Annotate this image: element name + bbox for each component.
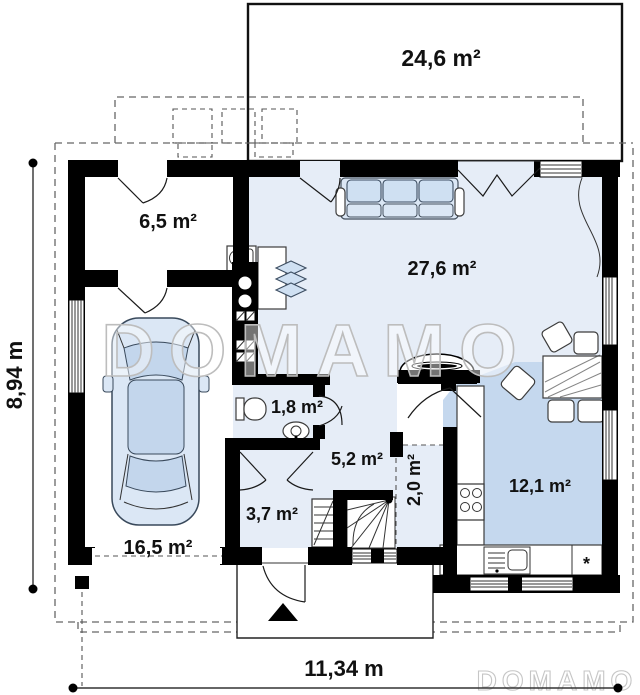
- hall-label: 3,7 m²: [246, 504, 298, 524]
- appliance-star: *: [583, 554, 590, 574]
- wardrobe: [312, 499, 335, 547]
- sofa: [336, 178, 464, 219]
- roof-window-outline: [178, 143, 212, 157]
- floor-plan-page: *: [0, 0, 640, 695]
- watermark-center: DOMAMO: [101, 309, 530, 392]
- chair: [574, 332, 598, 354]
- floor-plan-drawing: *: [0, 0, 640, 695]
- vestibule-entry-door: [118, 178, 167, 203]
- wc-label: 1,8 m²: [271, 397, 323, 417]
- kitchen-sink: [484, 547, 530, 574]
- toilet: [236, 398, 266, 420]
- roof-window-outline: [173, 109, 212, 143]
- dimension-left: 8,94 m: [2, 159, 38, 594]
- kitchen-right-window: [603, 410, 617, 480]
- chair: [578, 400, 604, 422]
- corridor-label: 5,2 m²: [331, 449, 383, 469]
- kitchen-south-window: [470, 577, 573, 591]
- garage-label: 16,5 m²: [124, 537, 193, 559]
- porch-column: [75, 576, 89, 589]
- watermark-corner: DOMAMO: [477, 665, 638, 695]
- door-opening: [118, 270, 167, 287]
- terrace-slab: [248, 4, 622, 161]
- stairs: [347, 497, 395, 549]
- terrace-door-window: [534, 160, 582, 177]
- radiator: [276, 261, 306, 297]
- garage-left-window: [69, 300, 84, 393]
- stairs-window: [352, 549, 397, 563]
- living-right-window: [603, 277, 617, 345]
- vestibule-label: 6,5 m²: [139, 211, 197, 233]
- terrace-label: 24,6 m²: [401, 45, 481, 71]
- living-label: 27,6 m²: [408, 258, 477, 280]
- wc-sink: [283, 422, 309, 440]
- height-dimension-label: 8,94 m: [2, 341, 27, 410]
- pantry-label: 2,0 m²: [404, 454, 424, 506]
- chair: [548, 400, 574, 422]
- kitchen-label: 12,1 m²: [509, 476, 571, 496]
- width-dimension-label: 11,34 m: [304, 656, 384, 681]
